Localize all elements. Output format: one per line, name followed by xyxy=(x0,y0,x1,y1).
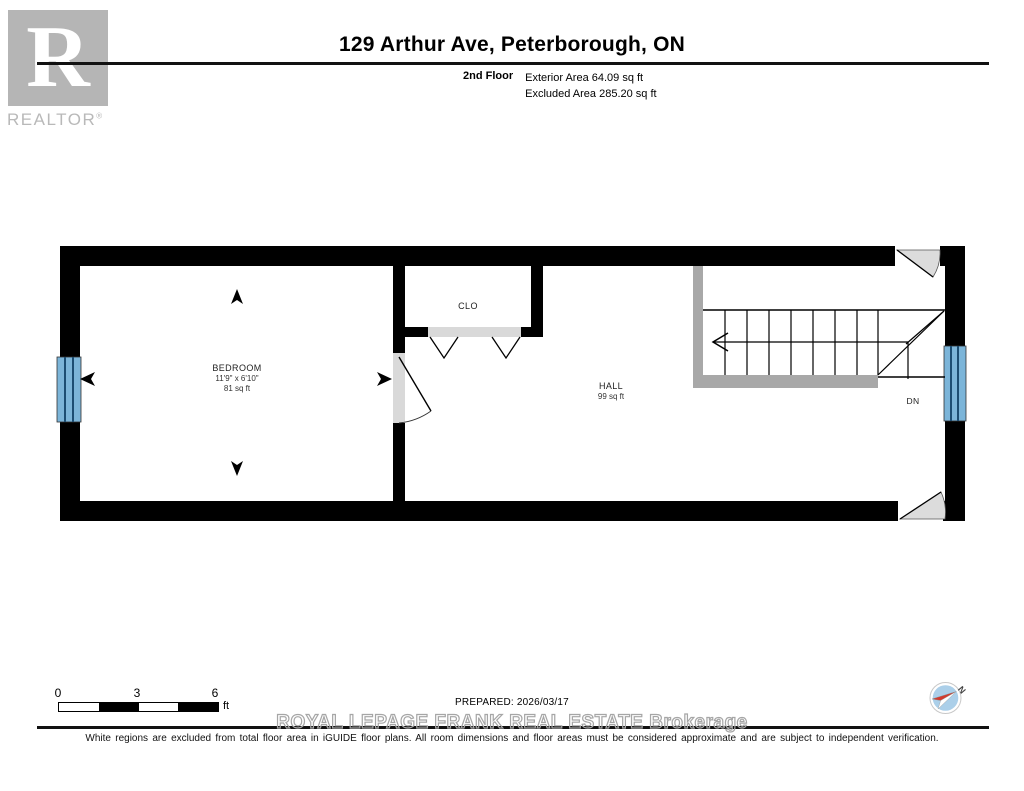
realtor-logo-icon: R xyxy=(8,10,108,106)
page-title: 129 Arthur Ave, Peterborough, ON xyxy=(0,33,1024,57)
arrow-left-icon xyxy=(80,372,95,386)
closet-bifold-doors-icon xyxy=(430,337,520,358)
room-area: 99 sq ft xyxy=(571,392,651,402)
arrow-up-icon xyxy=(231,289,243,304)
area-summary: Exterior Area 64.09 sq ft Excluded Area … xyxy=(525,70,656,102)
hall-top-door-icon xyxy=(897,250,940,277)
hall-label: HALL 99 sq ft xyxy=(571,381,651,402)
header-divider xyxy=(37,62,989,65)
excluded-area: Excluded Area 285.20 sq ft xyxy=(525,86,656,102)
disclaimer-text: White regions are excluded from total fl… xyxy=(0,733,1024,744)
room-dimensions: 11'9" x 6'10" xyxy=(157,374,317,384)
door-openings xyxy=(393,327,521,423)
floor-label: 2nd Floor xyxy=(463,70,513,102)
realtor-logo-letter: R xyxy=(26,14,90,102)
floor-summary: 2nd Floor Exterior Area 64.09 sq ft Excl… xyxy=(463,70,657,102)
arrow-down-icon xyxy=(231,461,243,476)
brokerage-watermark: ROYAL LEPAGE FRANK REAL ESTATE Brokerage xyxy=(0,712,1024,734)
stairs-down-label: DN xyxy=(893,396,933,406)
staircase xyxy=(693,266,945,388)
registered-trademark: ® xyxy=(96,111,103,120)
floor-plan-page: R REALTOR® 129 Arthur Ave, Peterborough,… xyxy=(0,0,1024,791)
room-name: HALL xyxy=(571,381,651,392)
realtor-wordmark: REALTOR® xyxy=(7,110,104,130)
closet-label: CLO xyxy=(428,301,508,312)
hall-window-icon xyxy=(944,346,966,421)
bedroom-label: BEDROOM 11'9" x 6'10" 81 sq ft xyxy=(157,363,317,394)
hall-bottom-door-icon xyxy=(900,492,945,519)
arrow-right-icon xyxy=(377,372,392,386)
room-name: BEDROOM xyxy=(157,363,317,374)
bedroom-window-icon xyxy=(57,357,81,422)
exterior-area: Exterior Area 64.09 sq ft xyxy=(525,70,656,86)
room-name: CLO xyxy=(428,301,508,312)
prepared-date: PREPARED: 2026/03/17 xyxy=(0,697,1024,708)
room-area: 81 sq ft xyxy=(157,384,317,394)
